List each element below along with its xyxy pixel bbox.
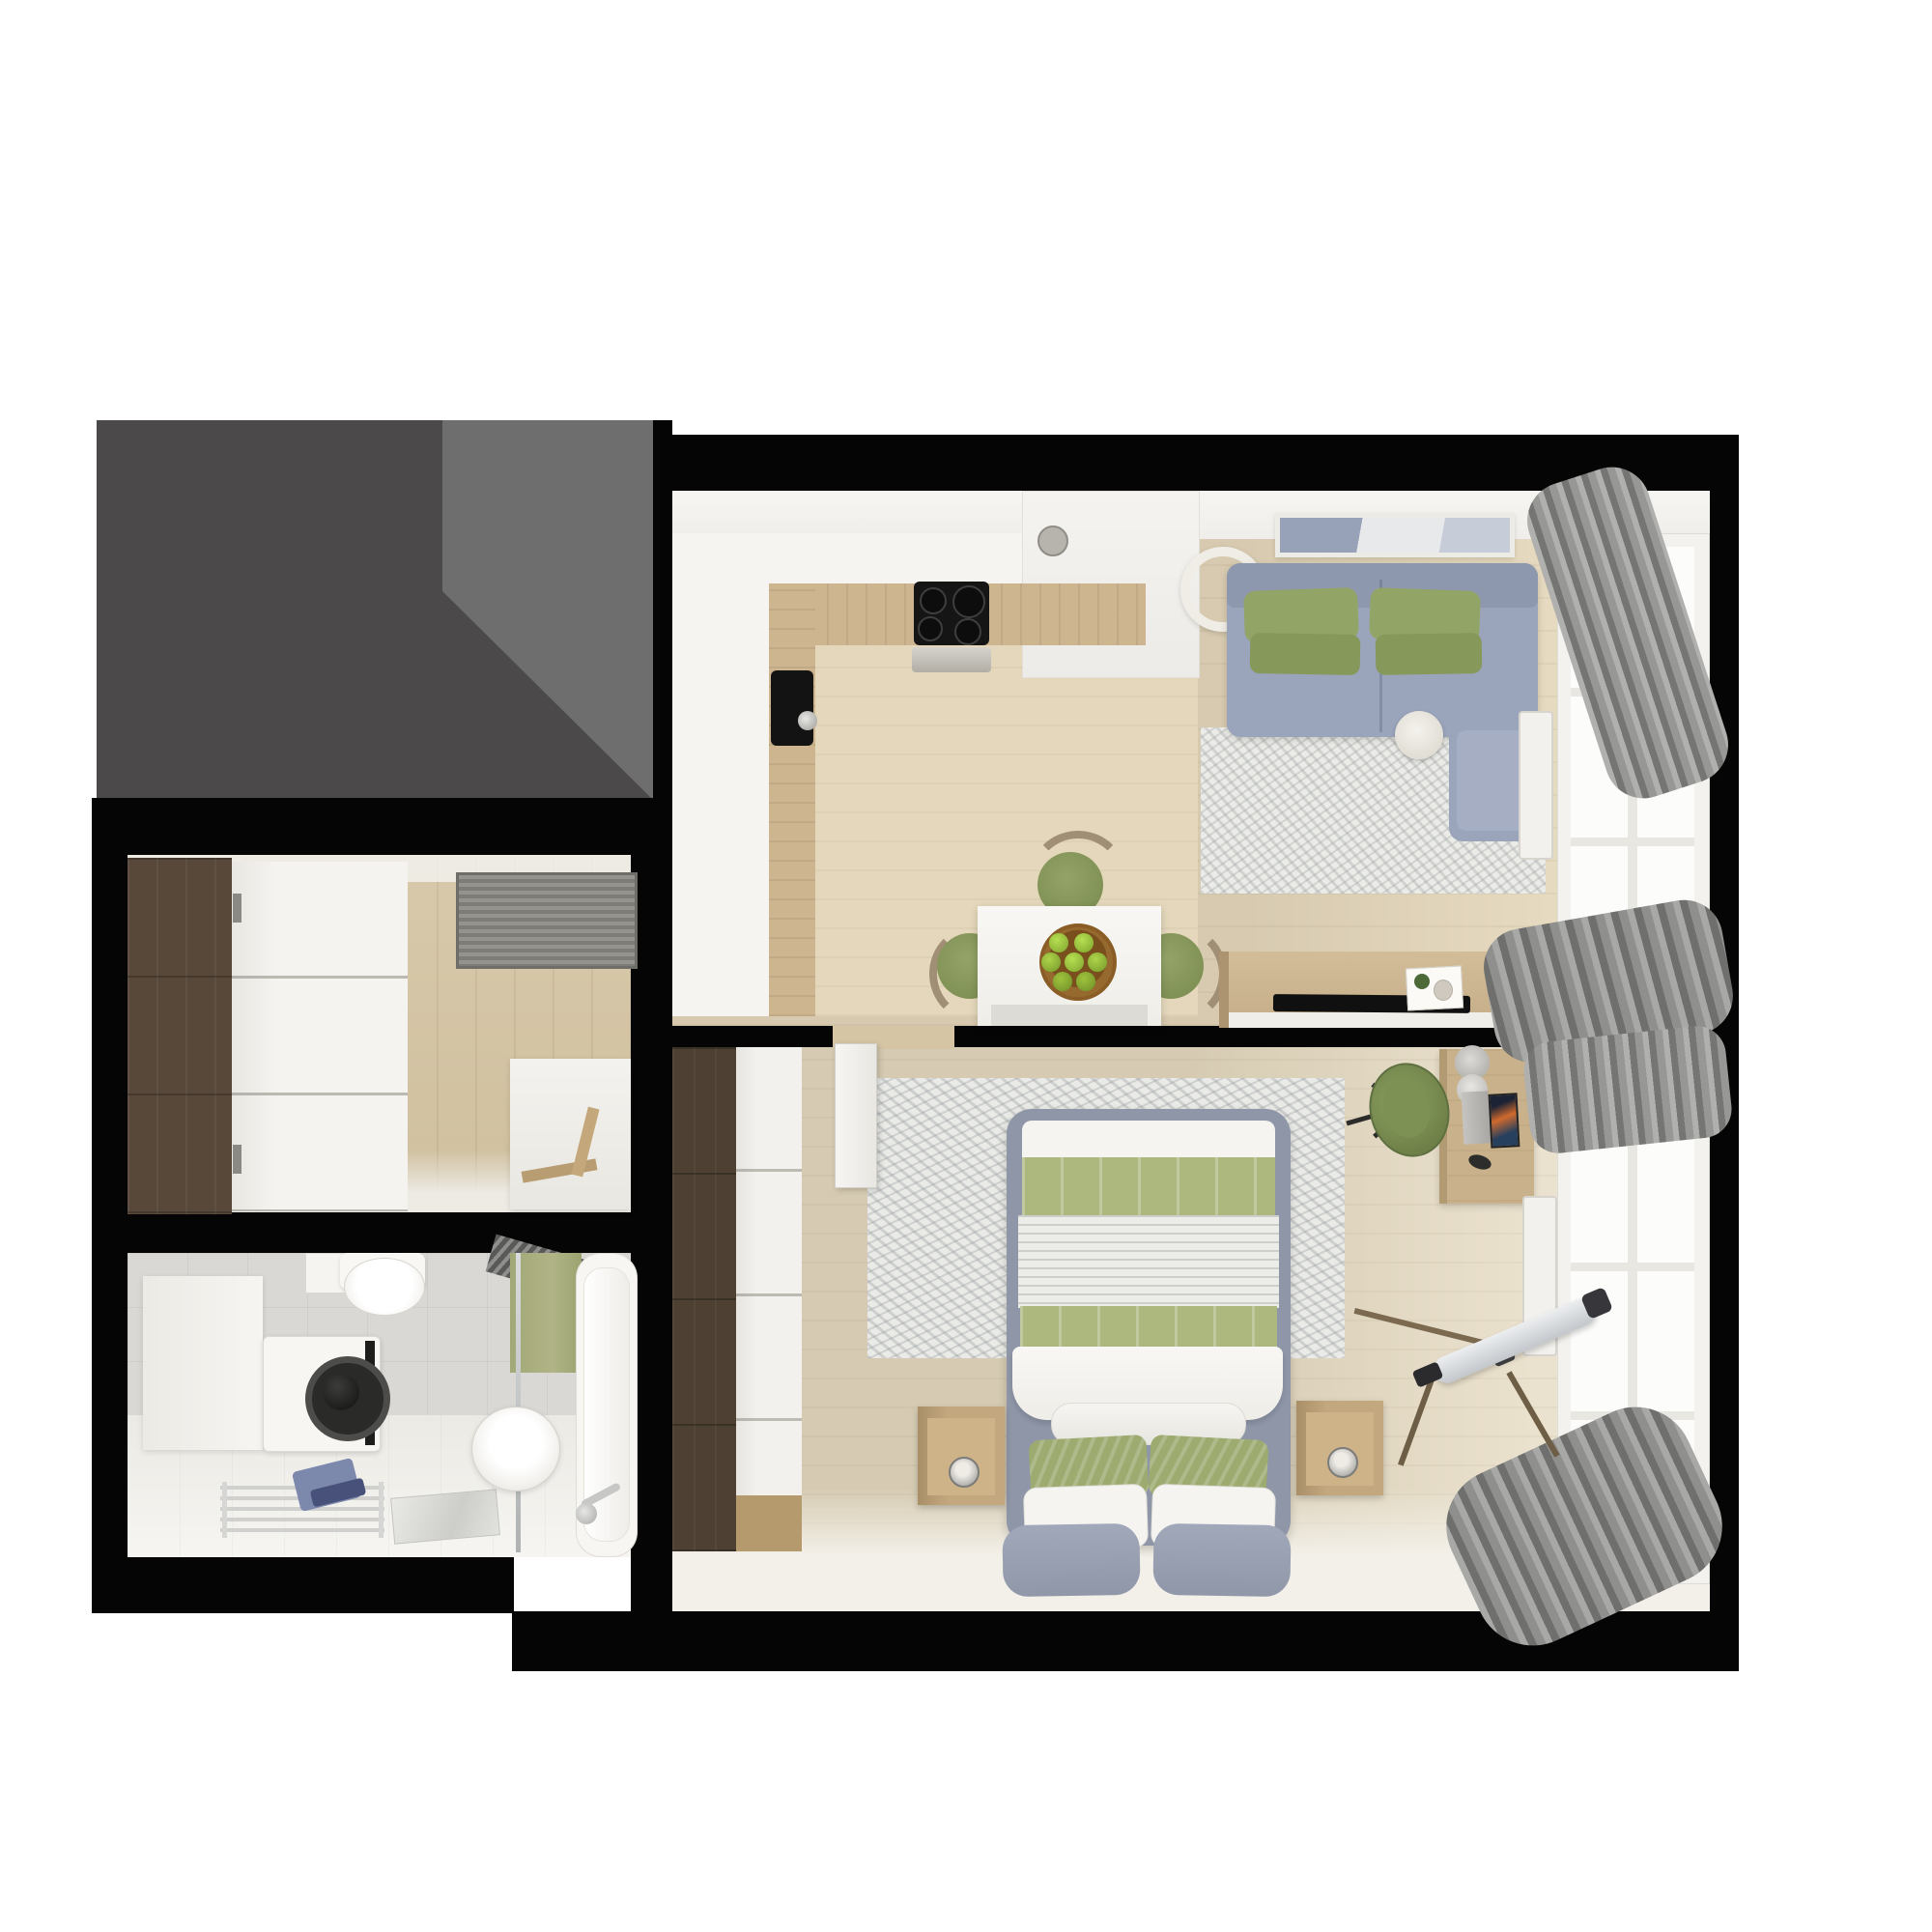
bathroom-counter [143,1276,263,1450]
shower-glass-pole [516,1253,521,1552]
kitchen-left-counter-wood [769,583,815,1016]
bed-headboard-cushion-right [1152,1523,1291,1597]
bathroom-sink [471,1406,560,1492]
kitchen-sink [771,670,813,746]
apple-3 [1041,952,1061,972]
wall-below-roof [92,798,672,856]
radiator-rail-right [379,1482,384,1538]
burner-top-left [920,587,947,614]
floor-plan-canvas [0,0,1932,1932]
burner-top-right [952,585,985,618]
sink-faucet [798,711,817,730]
wall-hall-bathroom [92,1212,636,1253]
laptop-keyboard [1462,1091,1492,1144]
bedroom-wardrobe-doors [736,1047,802,1551]
laptop-screen [1489,1093,1520,1148]
apple-2 [1074,933,1094,952]
kitchen-vent [1037,526,1068,556]
bed-green-stripe-bottom [1020,1306,1277,1349]
bed-green-stripe-top [1022,1157,1275,1215]
shower-green-curtain [510,1253,582,1373]
radiator-living [1519,711,1553,860]
apple-4 [1065,952,1084,972]
hallway-doormat [456,872,638,969]
ceiling-light-panel [1275,513,1515,557]
hallway-wardrobe-doors [232,862,408,1211]
wall-living-bedroom-right [954,1026,1526,1049]
shower-head [576,1503,597,1524]
frame-plant [1414,974,1430,989]
wall-roof-right-strip [653,420,672,855]
sideboard-front-edge [1219,1012,1534,1028]
toilet-bowl [344,1258,425,1316]
kitchen-left-cabinets [672,533,769,1016]
hallway-bench [510,1059,631,1209]
curtain-bedroom-top [1521,1023,1735,1155]
sofa-pillow-green-2 [1250,633,1361,675]
sofa-side-table [1395,711,1443,759]
apple-6 [1053,972,1072,991]
floor-mirror [390,1489,500,1544]
sideboard-left-edge [1219,952,1229,1028]
dining-table-lower-edge [991,1005,1148,1026]
wardrobe-hinge-bottom [233,1145,241,1174]
wardrobe-hinge-top [233,894,241,923]
apple-5 [1088,952,1107,972]
bed-headboard-cushion-left [1002,1523,1140,1597]
roof-dark-gray [97,420,442,798]
frame-vase [1434,980,1453,1001]
oven-handle [912,647,991,672]
bedroom-wardrobe-drawer [736,1495,802,1551]
bed-sheet-pleats [1018,1215,1279,1308]
hallway-wardrobe-wood [128,858,232,1214]
apple-1 [1049,933,1068,952]
bedroom-door-leaf [835,1043,877,1188]
wall-left [92,816,128,1560]
sofa-pillow-green-4 [1376,633,1483,675]
apple-7 [1076,972,1095,991]
burner-bottom-left [918,616,943,641]
wall-living-bedroom-left [631,1026,834,1049]
washer-door-glass [323,1374,359,1410]
radiator-rail-left [222,1482,227,1538]
bedroom-wardrobe-wood [672,1047,736,1551]
nightstand-right-lamp [1327,1447,1358,1478]
wall-bottom-left [92,1557,514,1613]
nightstand-left-lamp [949,1457,980,1488]
burner-bottom-right [954,618,981,645]
